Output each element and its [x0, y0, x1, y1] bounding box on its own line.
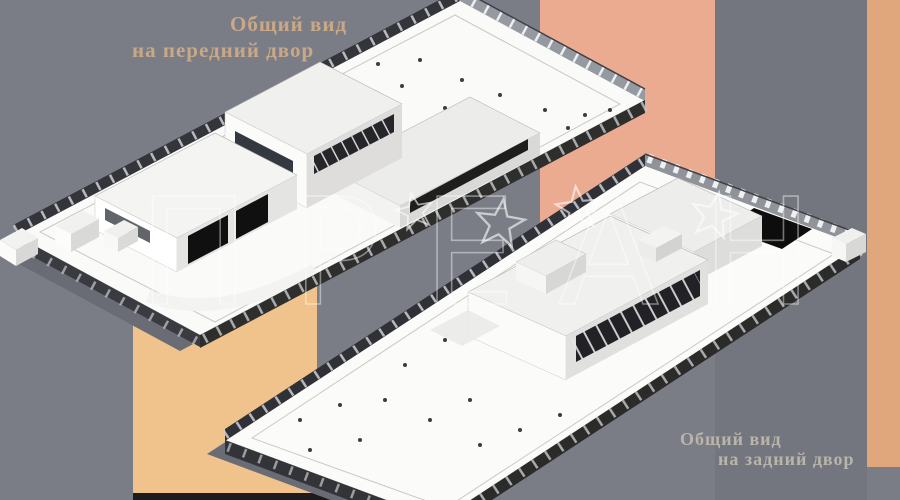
front-view-caption-line2: на передний двор: [132, 38, 314, 63]
back-view-caption-line1: Общий вид: [680, 429, 782, 450]
front-view-caption-line1: Общий вид: [230, 12, 347, 37]
back-view-caption-line2: на задний двор: [718, 449, 855, 470]
presentation-board: ПРЕАН Общий вид на передний двор Общий в…: [0, 0, 900, 500]
axonometric-scene: [0, 0, 900, 500]
